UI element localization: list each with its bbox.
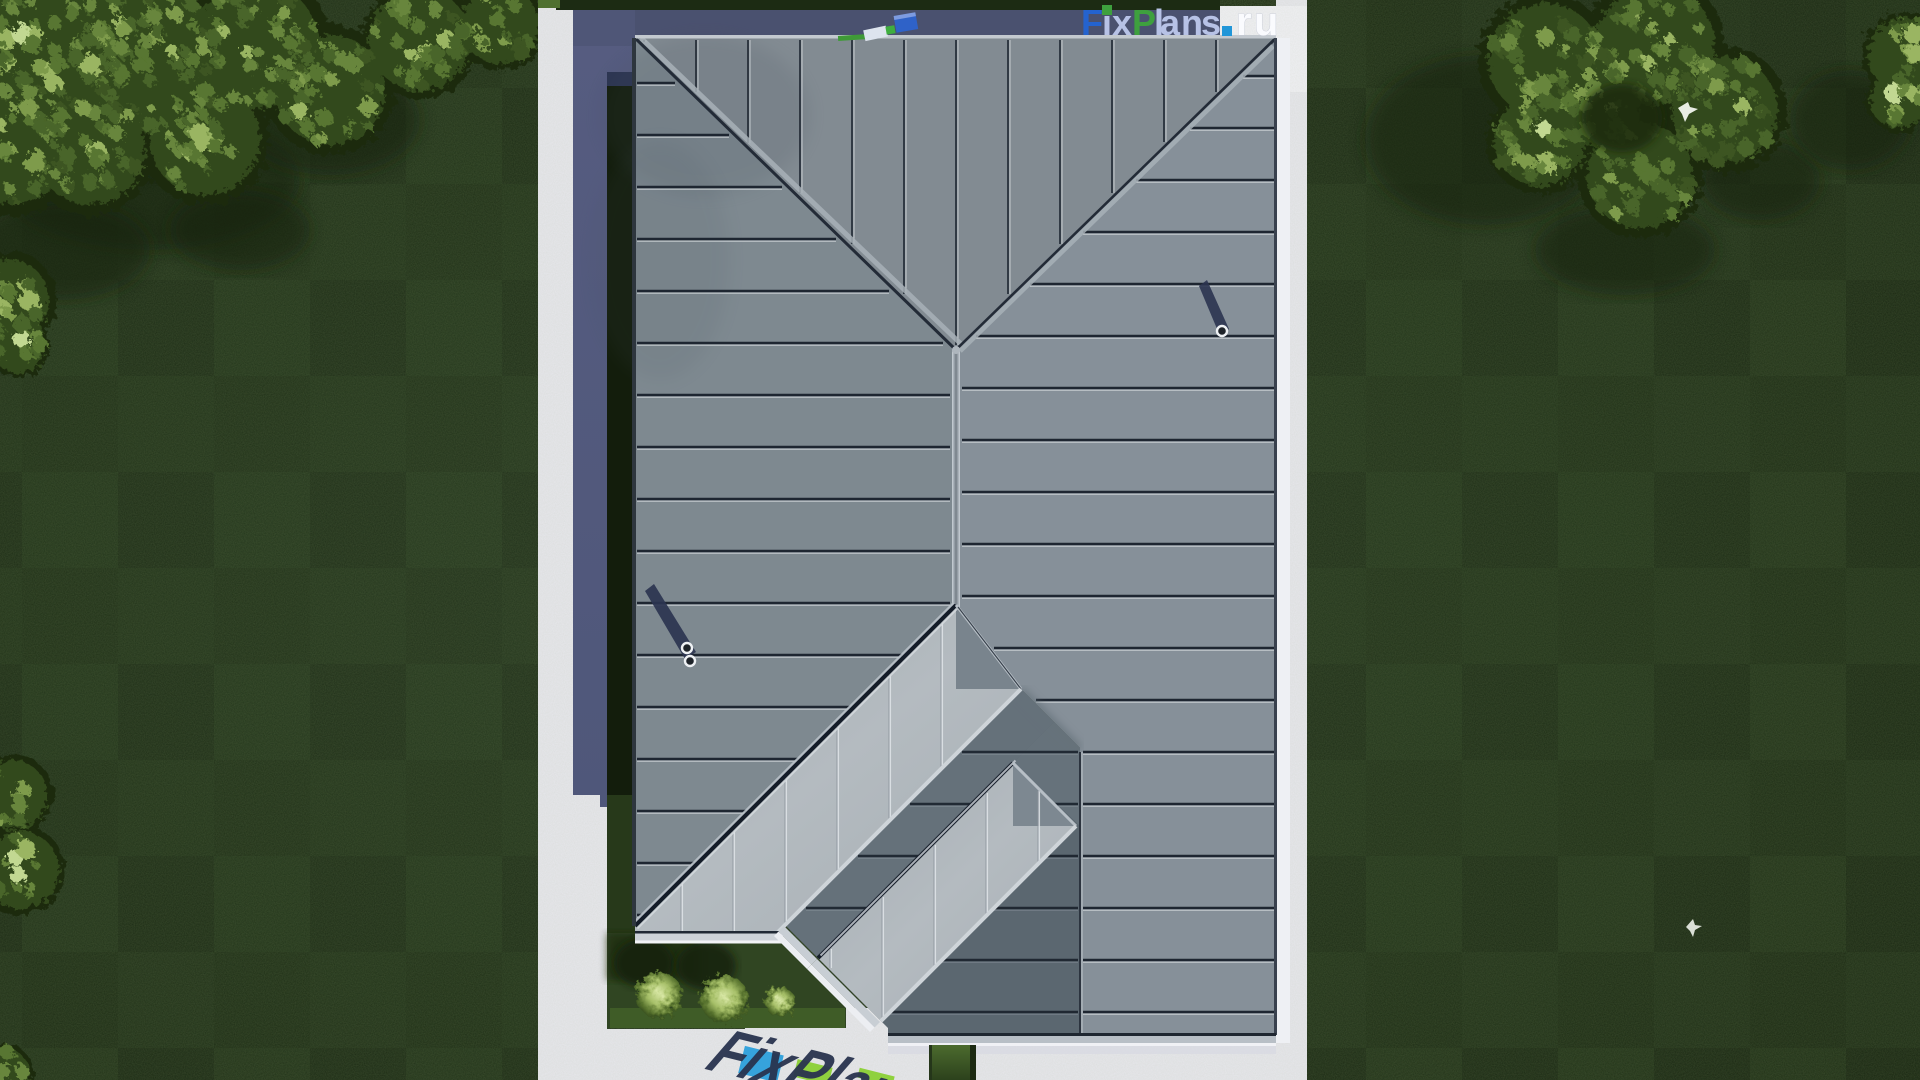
svg-text:s: s — [1201, 2, 1221, 43]
svg-text:x: x — [1112, 2, 1132, 43]
svg-text:a: a — [1160, 2, 1181, 43]
svg-text:n: n — [1181, 2, 1203, 43]
svg-text:r: r — [1236, 0, 1252, 44]
svg-text:P: P — [1132, 2, 1156, 43]
svg-text:u: u — [1254, 0, 1278, 44]
svg-text:F: F — [1081, 2, 1103, 43]
